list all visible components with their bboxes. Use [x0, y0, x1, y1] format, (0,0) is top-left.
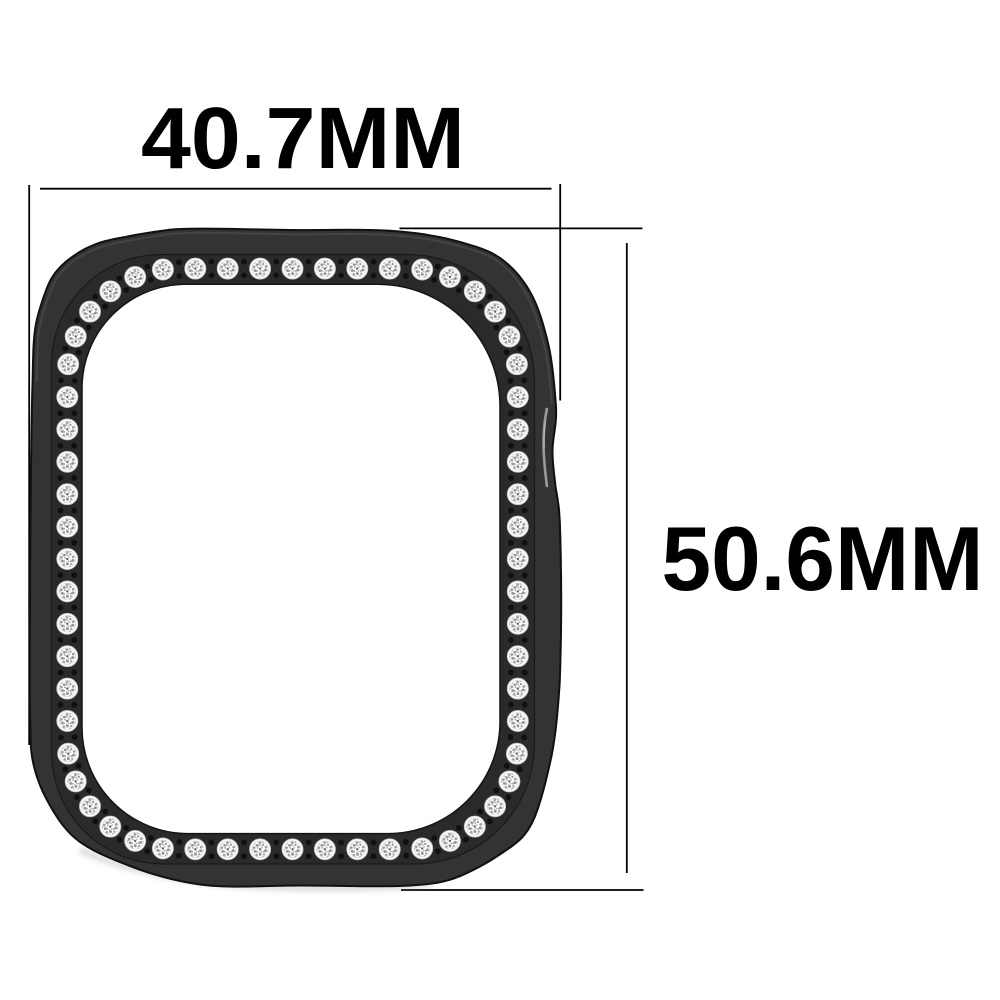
svg-text:40.7MM: 40.7MM: [141, 90, 465, 187]
svg-text:50.6MM: 50.6MM: [662, 509, 984, 610]
